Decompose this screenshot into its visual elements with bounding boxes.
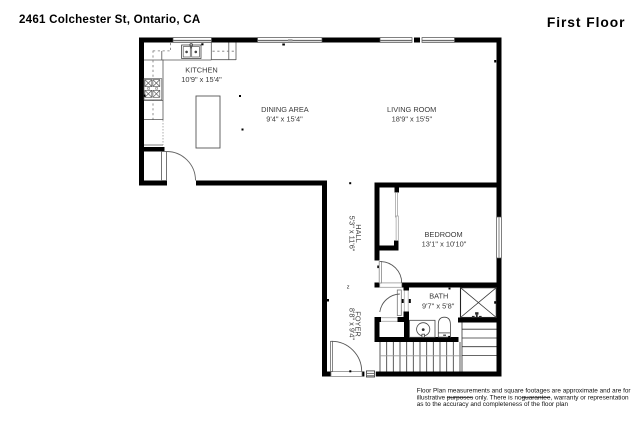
svg-text:8'8" x 9'4": 8'8" x 9'4"	[347, 308, 356, 341]
svg-text:BEDROOM: BEDROOM	[425, 230, 463, 239]
svg-text:First Floor: First Floor	[547, 15, 626, 30]
svg-text:10'9" x 15'4": 10'9" x 15'4"	[181, 75, 222, 84]
svg-text:KITCHEN: KITCHEN	[185, 66, 217, 75]
svg-text:9'7" x 5'8": 9'7" x 5'8"	[422, 301, 455, 310]
svg-text:DINING AREA: DINING AREA	[261, 105, 309, 114]
svg-text:18'9" x 15'5": 18'9" x 15'5"	[392, 115, 433, 124]
svg-text:as to the accuracy and complet: as to the accuracy and completeness of t…	[417, 401, 569, 408]
svg-text:9'4" x 15'4": 9'4" x 15'4"	[266, 115, 303, 124]
svg-text:LIVING ROOM: LIVING ROOM	[387, 105, 436, 114]
svg-text:13'1" x 10'10": 13'1" x 10'10"	[422, 240, 467, 249]
svg-text:z: z	[347, 285, 350, 291]
svg-text:BATH: BATH	[429, 292, 448, 301]
svg-text:5'3" x 11'6": 5'3" x 11'6"	[348, 216, 357, 252]
svg-text:2461 Colchester St, Ontario, C: 2461 Colchester St, Ontario, CA	[19, 13, 201, 26]
